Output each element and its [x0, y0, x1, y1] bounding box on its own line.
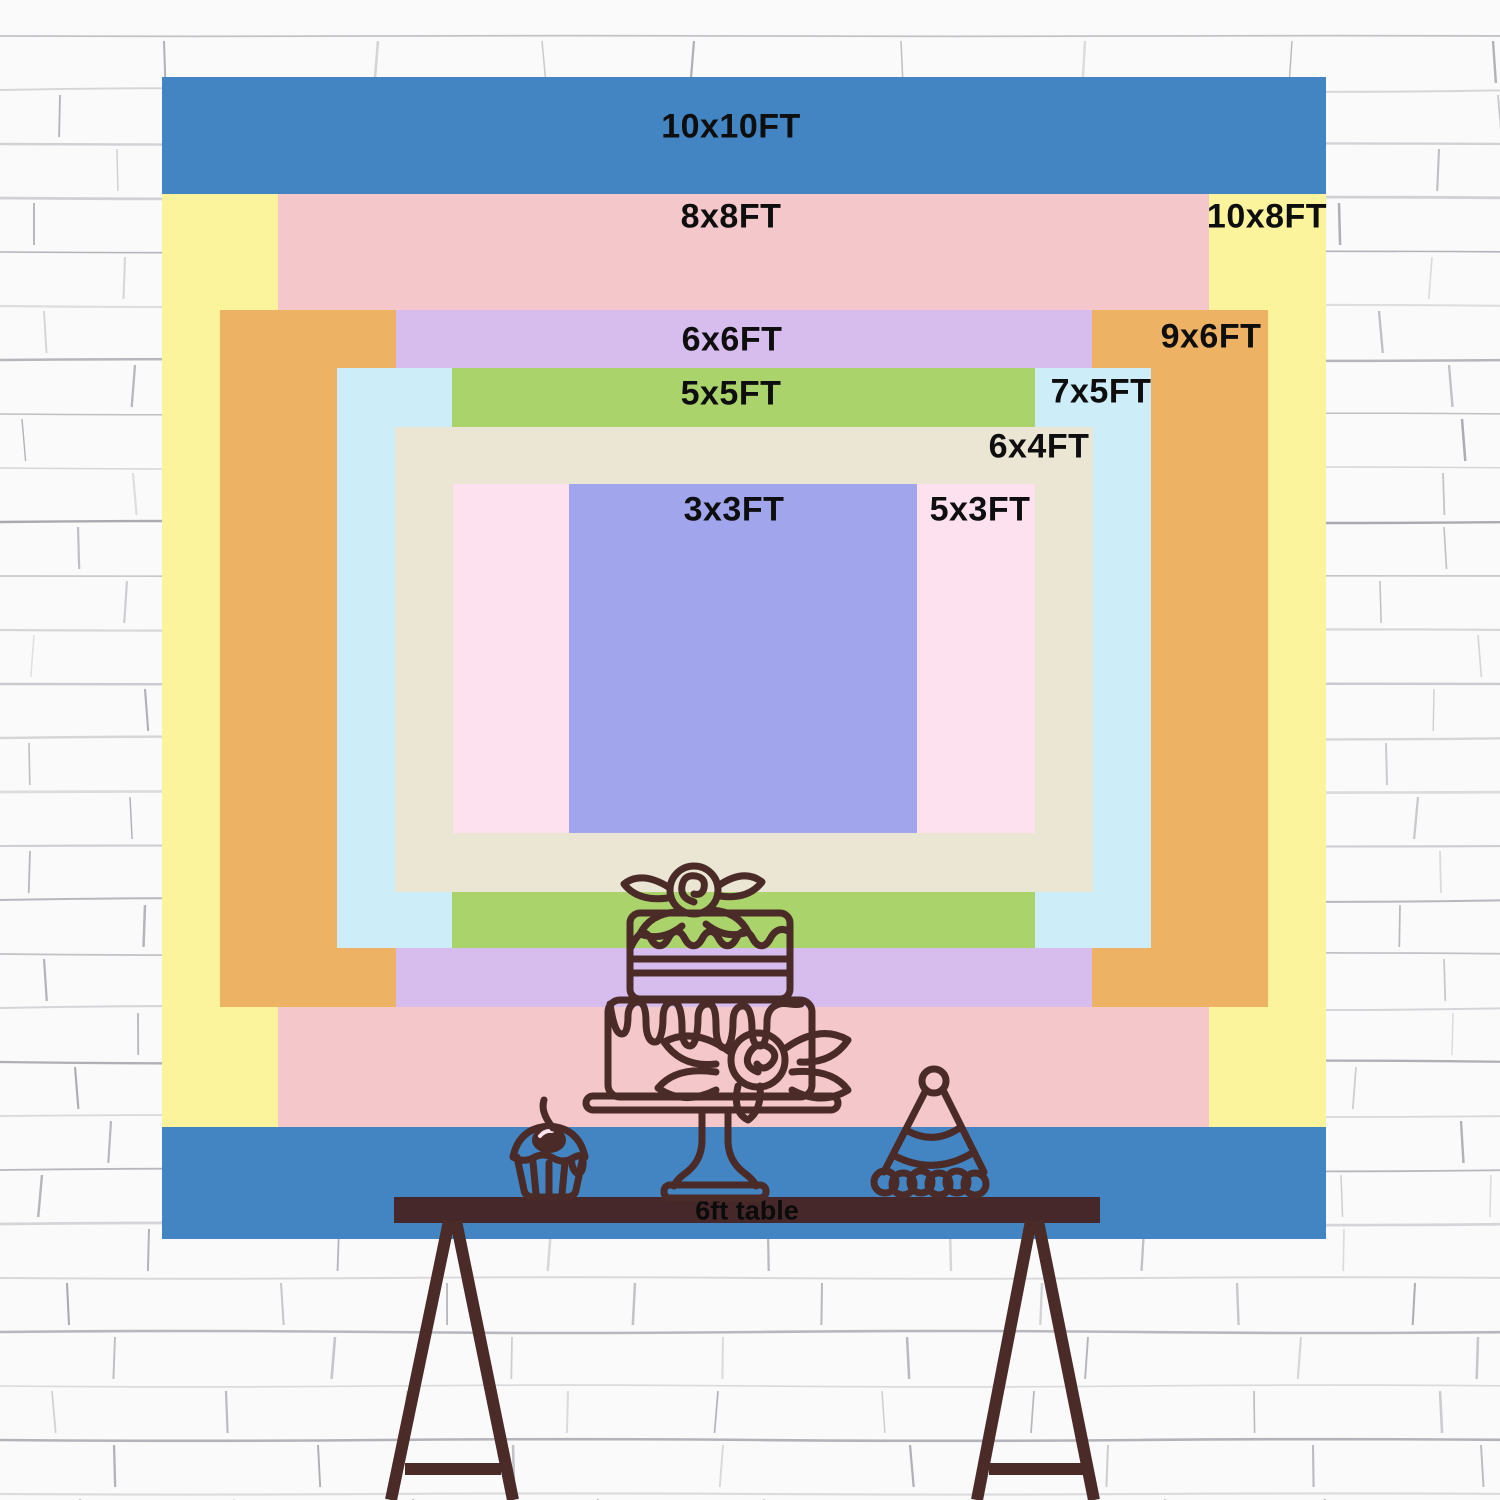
size-label-10x10: 10x10FT — [661, 108, 801, 147]
size-label-8x8: 8x8FT — [681, 198, 782, 237]
size-label-5x5: 5x5FT — [681, 375, 782, 414]
size-label-3x3: 3x3FT — [684, 491, 785, 530]
size-label-9x6: 9x6FT — [1161, 318, 1262, 357]
size-label-7x5: 7x5FT — [1051, 373, 1152, 412]
size-label-5x3: 5x3FT — [930, 491, 1031, 530]
size-label-6x4: 6x4FT — [989, 428, 1090, 467]
backdrop-size-chart: 10x10FT 10x8FT 8x8FT 9x6FT 6x6FT 7x5FT 5… — [0, 0, 1500, 1500]
size-rect-3x3 — [569, 484, 917, 833]
size-label-10x8: 10x8FT — [1207, 198, 1327, 237]
size-label-6x6: 6x6FT — [682, 321, 783, 360]
table-label: 6ft table — [695, 1196, 799, 1227]
